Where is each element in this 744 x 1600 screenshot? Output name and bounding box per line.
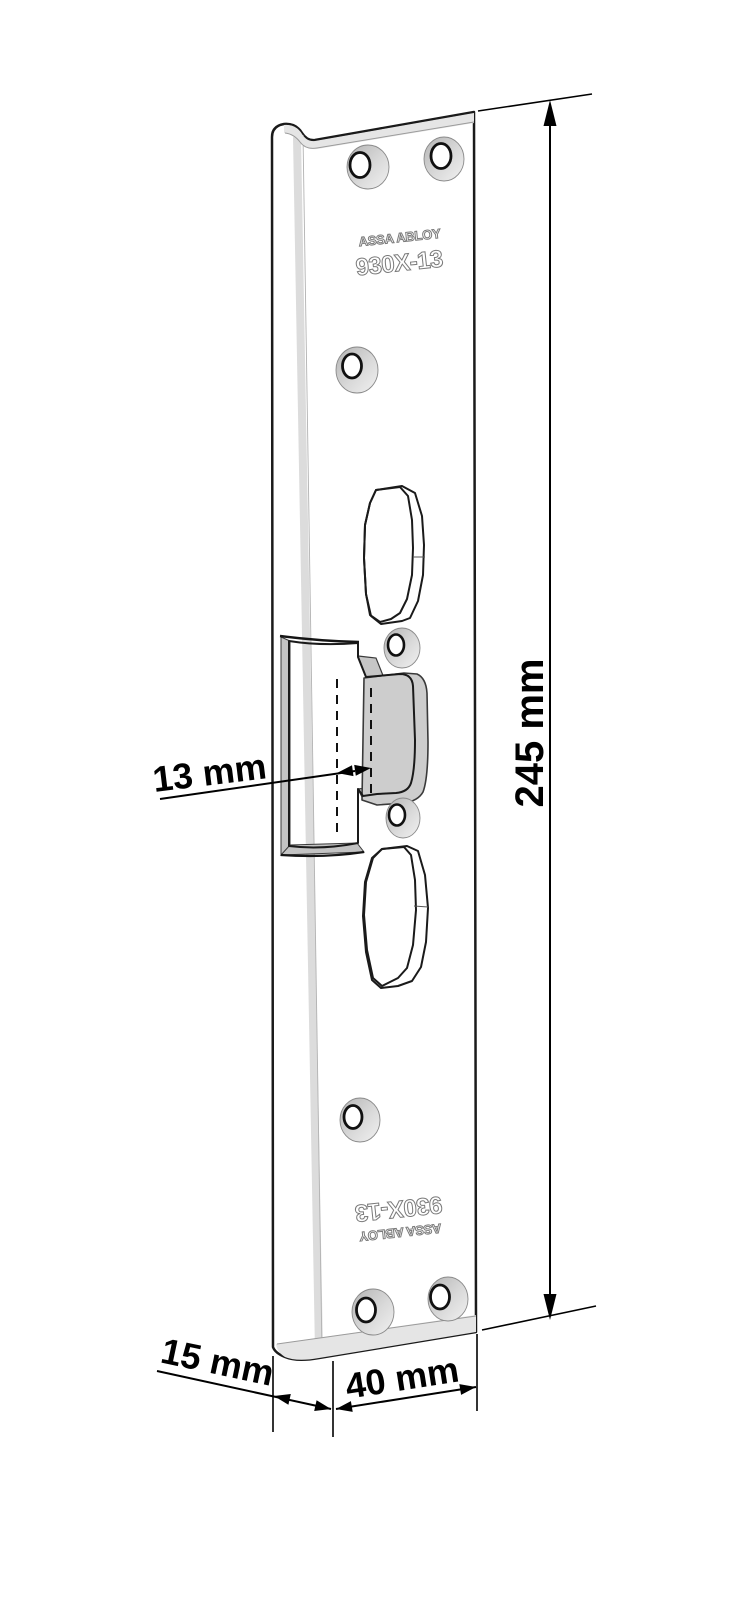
flange-arrow-left — [274, 1394, 291, 1405]
screw-hole-bottom-right — [428, 1277, 468, 1321]
diagram-canvas: ASSA ABLOY 930X-13 930X-13 ASSA ABLOY — [0, 0, 744, 1600]
screw-hole-bottom-left — [352, 1289, 394, 1335]
upper-cutout-opening — [364, 487, 413, 622]
engraving-bottom-model: 930X-13 — [354, 1190, 444, 1226]
dimension-height: 245 mm — [478, 94, 596, 1330]
height-extension-top — [478, 94, 592, 111]
height-label: 245 mm — [508, 659, 552, 808]
screw-hole-below-recess — [386, 798, 420, 838]
screw-hole-above-recess — [384, 628, 420, 668]
height-extension-bottom — [482, 1306, 596, 1330]
engraving-top-model: 930X-13 — [354, 246, 444, 282]
lower-cutout-opening — [364, 847, 416, 986]
screw-hole-upper-middle — [336, 347, 378, 393]
face-width-label: 40 mm — [343, 1348, 462, 1406]
lower-cutout-wall — [363, 846, 428, 988]
face-arrow-right — [459, 1384, 476, 1395]
engraving-top-brand: ASSA ABLOY — [358, 226, 442, 250]
latch-inset-label: 13 mm — [150, 745, 268, 800]
screw-hole-top-right — [424, 137, 464, 181]
height-arrow-up — [544, 100, 557, 126]
strike-plate-diagram: ASSA ABLOY 930X-13 930X-13 ASSA ABLOY — [0, 0, 744, 1600]
upper-cutout-wall — [364, 486, 424, 624]
latch-inset-arrow-left — [337, 765, 354, 776]
screw-hole-lower-middle — [340, 1098, 380, 1142]
screw-hole-top-left — [347, 145, 389, 189]
fold-highlight — [297, 137, 319, 1352]
